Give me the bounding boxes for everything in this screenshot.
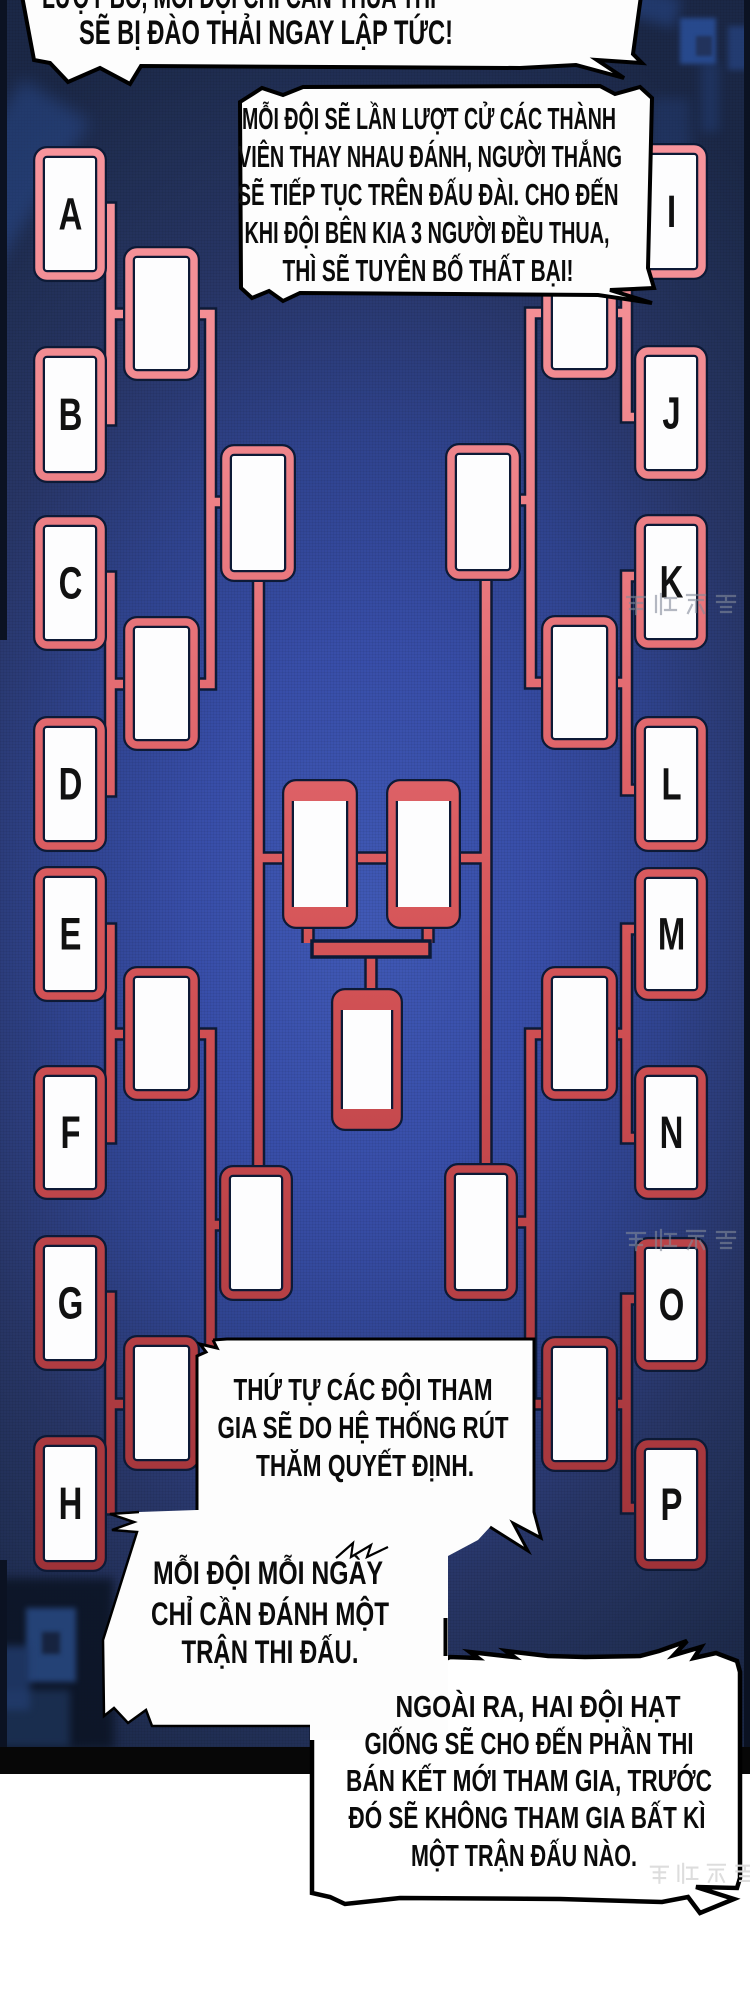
svg-text:A: A	[59, 190, 83, 240]
svg-text:K: K	[660, 558, 684, 608]
svg-text:E: E	[60, 910, 82, 960]
svg-text:O: O	[659, 1280, 685, 1330]
svg-text:J: J	[662, 389, 680, 439]
svg-text:N: N	[660, 1108, 684, 1158]
svg-text:G: G	[58, 1279, 84, 1329]
svg-text:B: B	[59, 390, 83, 440]
svg-text:M: M	[658, 910, 685, 960]
svg-text:D: D	[59, 760, 83, 810]
svg-text:I: I	[667, 187, 676, 237]
svg-text:L: L	[661, 760, 681, 810]
svg-text:C: C	[59, 559, 83, 609]
svg-text:H: H	[59, 1479, 83, 1529]
svg-text:P: P	[661, 1480, 683, 1530]
svg-text:F: F	[60, 1108, 80, 1158]
